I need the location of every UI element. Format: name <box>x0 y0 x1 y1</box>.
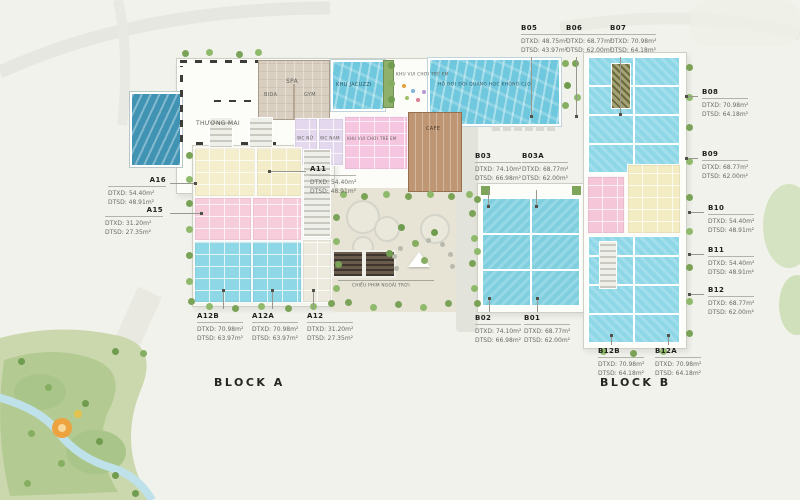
unit-a12-footprint <box>302 239 332 303</box>
unit-name: B01 <box>524 314 570 322</box>
callout-line-b12 <box>690 294 704 295</box>
callout-line-a15 <box>170 213 202 214</box>
unit-dtxd: DTXD: 70.98m² <box>655 360 701 369</box>
unit-label-b12: B12 DTXD: 68.77m²DTSD: 62.00m² <box>708 286 754 318</box>
unit-dtxd: DTXD: 31.20m² <box>105 219 163 228</box>
unit-dtsd: DTSD: 48.91m² <box>708 268 754 277</box>
unit-dtxd: DTXD: 74.10m² <box>475 165 521 174</box>
unit-label-b10: B10 DTXD: 54.40m²DTSD: 48.91m² <box>708 204 754 236</box>
label-divider <box>108 186 166 187</box>
unit-label-b08: B08 DTXD: 70.98m²DTSD: 64.18m² <box>702 88 748 120</box>
callout-dot <box>271 289 274 292</box>
unit-dtsd: DTSD: 64.18m² <box>610 46 656 55</box>
callout-dot <box>488 297 491 300</box>
unit-dtxd: DTXD: 68.77m² <box>702 163 748 172</box>
unit-dtsd: DTSD: 48.91m² <box>310 187 356 196</box>
pergola <box>366 252 394 276</box>
cinema-line <box>338 280 434 281</box>
callout-line-b12b <box>611 336 612 345</box>
block-b-title: BLOCK B <box>600 376 671 389</box>
unit-dtsd: DTSD: 48.91m² <box>708 226 754 235</box>
label-divider <box>197 322 243 323</box>
callout-dot <box>688 211 691 214</box>
callout-line-b02 <box>489 299 490 312</box>
playground-equipment <box>402 84 406 88</box>
unit-dtxd: DTXD: 70.98m² <box>252 325 298 334</box>
unit-dtxd: DTXD: 74.10m² <box>475 327 521 336</box>
unit-label-b02: B02 DTXD: 74.10m²DTSD: 66.98m² <box>475 314 521 346</box>
commercial-wall <box>214 100 256 102</box>
callout-line-b06 <box>576 57 577 117</box>
unit-label-b01: B01 DTXD: 68.77m²DTSD: 62.00m² <box>524 314 570 346</box>
unit-label-b12a: B12A DTXD: 70.98m²DTSD: 64.18m² <box>655 347 701 379</box>
unit-dtsd: DTSD: 43.97m² <box>521 46 567 55</box>
callout-line-a12a <box>272 291 273 309</box>
unit-dtsd: DTSD: 62.00m² <box>524 336 570 345</box>
unit-name: B10 <box>708 204 754 212</box>
label-divider <box>521 34 567 35</box>
callout-line-b08 <box>687 96 698 97</box>
unit-name: A12A <box>252 312 298 320</box>
callout-line-b03 <box>488 190 489 206</box>
unit-dtsd: DTSD: 66.98m² <box>475 174 521 183</box>
label-divider <box>522 162 568 163</box>
jacuzzi-label: KHU JACUZZI <box>336 82 372 88</box>
bida-label: BIDA <box>264 92 277 98</box>
unit-dtxd: DTXD: 70.98m² <box>702 101 748 110</box>
unit-dtsd: DTSD: 64.18m² <box>702 110 748 119</box>
label-divider <box>702 160 748 161</box>
unit-name: A12 <box>307 312 353 320</box>
unit-label-a15: A15 DTXD: 31.20m²DTSD: 27.35m² <box>105 206 163 238</box>
lap-pool <box>130 92 182 167</box>
site-plan: THƯƠNG MẠI SPA BIDA GYM KHU JACUZZI KHU … <box>0 0 800 500</box>
block-b-low-units <box>481 197 581 307</box>
unit-dtxd: DTXD: 68.77m² <box>522 165 568 174</box>
unit-label-a12b: A12B DTXD: 70.98m²DTSD: 63.97m² <box>197 312 243 344</box>
label-divider <box>708 296 754 297</box>
callout-dot <box>685 95 688 98</box>
callout-dot <box>487 205 490 208</box>
callout-line-b01 <box>537 299 538 312</box>
callout-dot <box>536 297 539 300</box>
callout-line-b03a <box>536 190 537 206</box>
label-divider <box>702 98 748 99</box>
cinema-seats <box>398 246 403 251</box>
callout-dot <box>530 115 533 118</box>
garden-bed <box>374 216 400 242</box>
callout-dot <box>688 253 691 256</box>
unit-a15b-footprint <box>252 197 302 241</box>
callout-line-b12a <box>668 336 669 345</box>
unit-name: B08 <box>702 88 748 96</box>
unit-dtsd: DTSD: 63.97m² <box>252 334 298 343</box>
wc-nu-label: WC NỮ <box>297 136 314 141</box>
unit-dtxd: DTXD: 31.20m² <box>307 325 353 334</box>
unit-name: B11 <box>708 246 754 254</box>
unit-label-a12a: A12A DTXD: 70.98m²DTSD: 63.97m² <box>252 312 298 344</box>
unit-name: A15 <box>105 206 163 214</box>
unit-label-a12: A12 DTXD: 31.20m²DTSD: 27.35m² <box>307 312 353 344</box>
planter-square <box>572 186 581 195</box>
unit-label-b05: B05 DTXD: 48.75m²DTSD: 43.97m² <box>521 24 567 56</box>
unit-dtsd: DTSD: 66.98m² <box>475 336 521 345</box>
unit-name: B07 <box>610 24 656 32</box>
unit-dtsd: DTSD: 27.35m² <box>307 334 353 343</box>
unit-name: B12 <box>708 286 754 294</box>
unit-name: B12A <box>655 347 701 355</box>
callout-dot <box>194 182 197 185</box>
unit-name: B12B <box>598 347 644 355</box>
pergola <box>334 252 362 276</box>
callout-dot <box>268 170 271 173</box>
callout-dot <box>200 212 203 215</box>
unit-a11-footprint <box>256 147 302 197</box>
pool-loungers <box>492 126 500 131</box>
callout-dot <box>312 289 315 292</box>
unit-label-b07: B07 DTXD: 70.98m²DTSD: 64.18m² <box>610 24 656 56</box>
callout-dot <box>685 157 688 160</box>
unit-name: B03A <box>522 152 568 160</box>
label-divider <box>475 324 521 325</box>
spa-label: SPA <box>286 78 298 85</box>
unit-label-b09: B09 DTXD: 68.77m²DTSD: 62.00m² <box>702 150 748 182</box>
kids-room-label: KHU VUI CHƠI TRẺ EM <box>347 137 396 142</box>
unit-name: A16 <box>108 176 166 184</box>
unit-dtxd: DTXD: 48.75m² <box>521 37 567 46</box>
stair-core <box>600 242 616 288</box>
callout-dot <box>575 115 578 118</box>
block-b-top-units <box>587 56 681 174</box>
unit-label-b12b: B12B DTXD: 70.98m²DTSD: 64.18m² <box>598 347 644 379</box>
unit-name: B06 <box>566 24 612 32</box>
unit-name: B02 <box>475 314 521 322</box>
block-a-title: BLOCK A <box>214 376 285 389</box>
callout-dot <box>610 334 613 337</box>
callout-line-b10 <box>690 212 704 213</box>
unit-name: B09 <box>702 150 748 158</box>
label-divider <box>708 256 754 257</box>
unit-label-b11: B11 DTXD: 54.40m²DTSD: 48.91m² <box>708 246 754 278</box>
unit-label-a11: A11 DTXD: 54.40m²DTSD: 48.91m² <box>310 165 356 197</box>
kids-area-label: KHU VUI CHƠI TRẺ EM <box>396 72 449 77</box>
unit-label-b03a: B03A DTXD: 68.77m²DTSD: 62.00m² <box>522 152 568 184</box>
callout-dot <box>667 334 670 337</box>
gym-label: GYM <box>304 92 316 98</box>
unit-name: A11 <box>310 165 356 173</box>
spa-divider <box>293 84 295 120</box>
unit-dtsd: DTSD: 63.97m² <box>197 334 243 343</box>
callout-line-b09 <box>687 158 698 159</box>
unit-a15-footprint <box>194 197 252 241</box>
label-divider <box>566 34 612 35</box>
callout-dot <box>535 205 538 208</box>
label-divider <box>310 175 356 176</box>
callout-line-b07 <box>620 57 621 115</box>
callout-line-a12 <box>313 291 314 309</box>
unit-dtxd: DTXD: 54.40m² <box>708 259 754 268</box>
stair-core <box>250 118 272 148</box>
tree-cluster <box>0 0 7 7</box>
unit-dtxd: DTXD: 68.77m² <box>708 299 754 308</box>
block-b-yellow-units <box>627 164 681 234</box>
block-b-pink-units <box>587 176 625 234</box>
unit-label-a16: A16 DTXD: 54.40m²DTSD: 48.91m² <box>108 176 166 208</box>
unit-dtxd: DTXD: 54.40m² <box>108 189 166 198</box>
unit-name: A12B <box>197 312 243 320</box>
unit-dtsd: DTSD: 62.00m² <box>566 46 612 55</box>
cafe-label: CAFE <box>426 126 440 132</box>
planter-strip <box>383 60 394 108</box>
unit-dtsd: DTSD: 27.35m² <box>105 228 163 237</box>
callout-line-a16 <box>170 183 196 184</box>
label-divider <box>655 357 701 358</box>
label-divider <box>524 324 570 325</box>
label-divider <box>252 322 298 323</box>
callout-line-b05 <box>531 57 532 117</box>
commercial-label: THƯƠNG MẠI <box>196 120 240 127</box>
kids-room <box>344 116 408 170</box>
unit-dtsd: DTSD: 62.00m² <box>522 174 568 183</box>
elevator-core <box>612 64 630 108</box>
wc-nam-label: WC NAM <box>320 136 340 141</box>
unit-dtxd: DTXD: 70.98m² <box>197 325 243 334</box>
unit-a12a-footprint <box>252 241 302 303</box>
main-pool-label: HỒ BƠI ĐÔI QUANG HỌC KHÔNG CLO <box>438 82 531 87</box>
unit-a16-footprint <box>194 147 256 197</box>
callout-line-b11 <box>690 254 704 255</box>
label-divider <box>610 34 656 35</box>
garden-bed <box>420 214 450 244</box>
unit-name: B03 <box>475 152 521 160</box>
callout-dot <box>222 289 225 292</box>
callout-line-a11 <box>270 171 306 172</box>
unit-label-b03: B03 DTXD: 74.10m²DTSD: 66.98m² <box>475 152 521 184</box>
callout-line-a12b <box>223 291 224 309</box>
unit-dtxd: DTXD: 68.77m² <box>524 327 570 336</box>
cinema-label: CHIẾU PHIM NGOÀI TRỜI <box>352 283 410 288</box>
label-divider <box>307 322 353 323</box>
cafe-room <box>408 112 462 192</box>
unit-dtxd: DTXD: 68.77m² <box>566 37 612 46</box>
unit-dtxd: DTXD: 70.98m² <box>610 37 656 46</box>
label-divider <box>105 216 163 217</box>
label-divider <box>708 214 754 215</box>
label-divider <box>475 162 521 163</box>
unit-name: B05 <box>521 24 567 32</box>
unit-dtxd: DTXD: 54.40m² <box>708 217 754 226</box>
callout-dot <box>619 113 622 116</box>
commercial-wall <box>180 66 183 142</box>
cinema-screen <box>408 252 430 267</box>
unit-dtxd: DTXD: 54.40m² <box>310 178 356 187</box>
unit-dtxd: DTXD: 70.98m² <box>598 360 644 369</box>
unit-label-b06: B06 DTXD: 68.77m²DTSD: 62.00m² <box>566 24 612 56</box>
callout-dot <box>688 293 691 296</box>
unit-dtsd: DTSD: 62.00m² <box>702 172 748 181</box>
label-divider <box>598 357 644 358</box>
unit-dtsd: DTSD: 62.00m² <box>708 308 754 317</box>
